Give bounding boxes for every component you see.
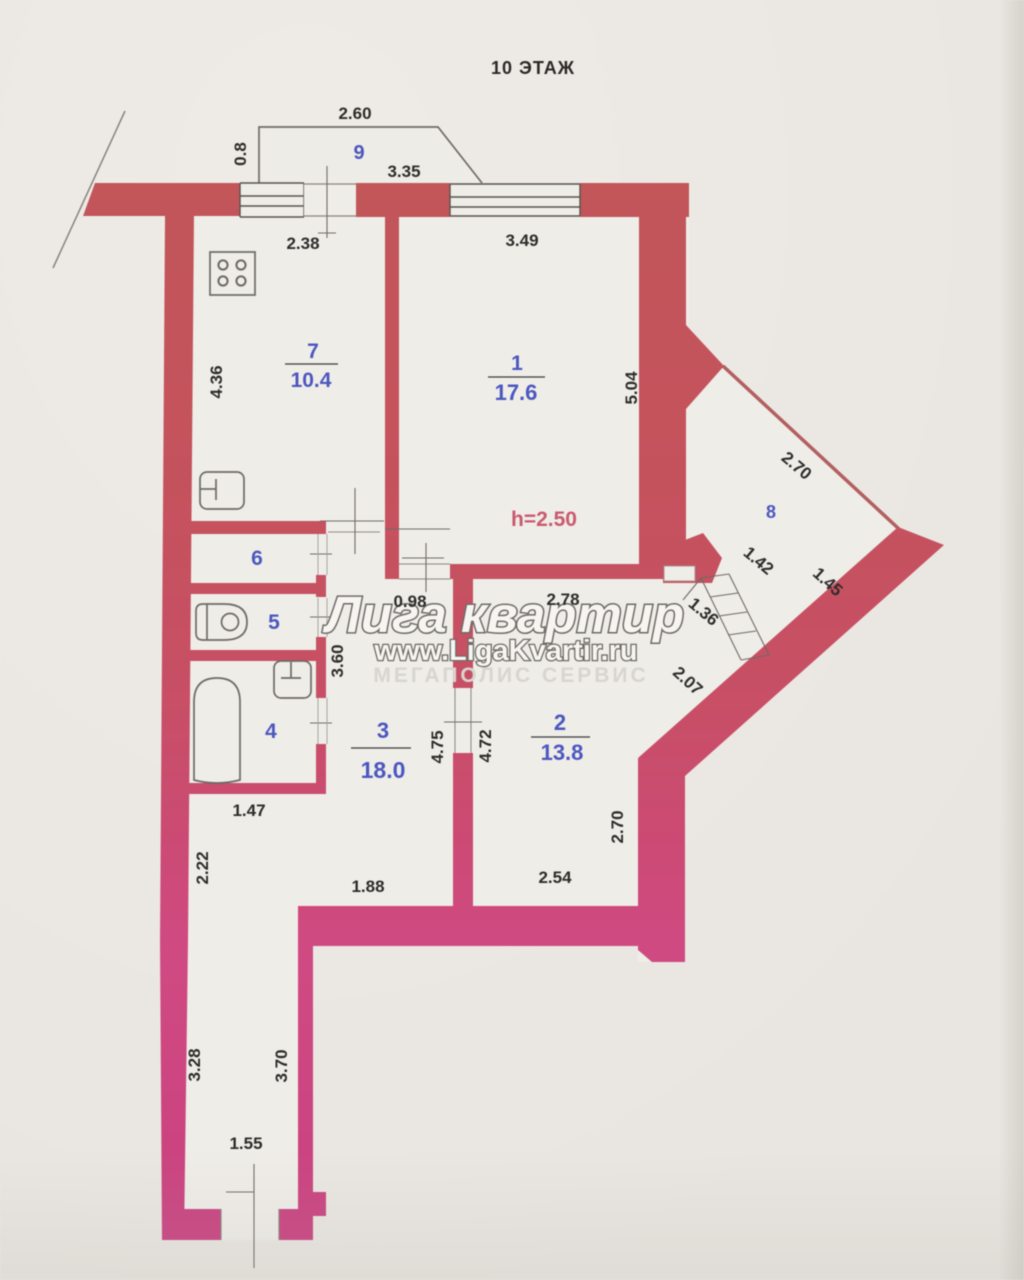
svg-text:13.8: 13.8 bbox=[541, 740, 584, 765]
svg-text:5.04: 5.04 bbox=[622, 371, 641, 405]
svg-text:2.54: 2.54 bbox=[538, 868, 572, 887]
svg-text:3: 3 bbox=[377, 718, 389, 743]
svg-text:0.98: 0.98 bbox=[393, 592, 426, 611]
svg-text:4: 4 bbox=[265, 720, 277, 743]
svg-text:4.75: 4.75 bbox=[428, 730, 447, 763]
svg-text:1.47: 1.47 bbox=[232, 801, 265, 820]
svg-text:2.38: 2.38 bbox=[286, 234, 319, 253]
svg-text:1.88: 1.88 bbox=[351, 877, 384, 896]
svg-text:2: 2 bbox=[554, 710, 566, 735]
svg-text:5: 5 bbox=[268, 611, 280, 634]
svg-text:7: 7 bbox=[307, 340, 319, 363]
svg-text:4.72: 4.72 bbox=[476, 729, 495, 762]
svg-text:3.60: 3.60 bbox=[328, 644, 347, 677]
svg-text:10.4: 10.4 bbox=[291, 369, 332, 392]
svg-text:6: 6 bbox=[251, 547, 263, 570]
svg-text:1: 1 bbox=[511, 352, 523, 375]
svg-text:www.LigaKvartir.ru: www.LigaKvartir.ru bbox=[373, 635, 637, 667]
svg-text:17.6: 17.6 bbox=[495, 380, 538, 405]
svg-text:18.0: 18.0 bbox=[361, 757, 406, 783]
svg-text:4.36: 4.36 bbox=[207, 365, 226, 398]
svg-text:3.70: 3.70 bbox=[272, 1049, 291, 1082]
svg-text:10 ЭТАЖ: 10 ЭТАЖ bbox=[491, 58, 575, 78]
svg-text:0.8: 0.8 bbox=[231, 142, 250, 166]
svg-text:2.22: 2.22 bbox=[193, 851, 212, 884]
svg-text:h=2.50: h=2.50 bbox=[511, 508, 577, 531]
svg-text:3.28: 3.28 bbox=[185, 1048, 204, 1081]
svg-text:2.70: 2.70 bbox=[608, 810, 627, 843]
svg-text:9: 9 bbox=[353, 142, 364, 164]
svg-text:2.78: 2.78 bbox=[546, 590, 579, 609]
svg-text:3.49: 3.49 bbox=[505, 231, 538, 250]
svg-text:3.35: 3.35 bbox=[387, 162, 420, 181]
svg-text:МЕГАПОЛИС СЕРВИС: МЕГАПОЛИС СЕРВИС bbox=[373, 664, 648, 687]
svg-text:8: 8 bbox=[766, 502, 776, 522]
svg-text:2.60: 2.60 bbox=[338, 104, 371, 123]
